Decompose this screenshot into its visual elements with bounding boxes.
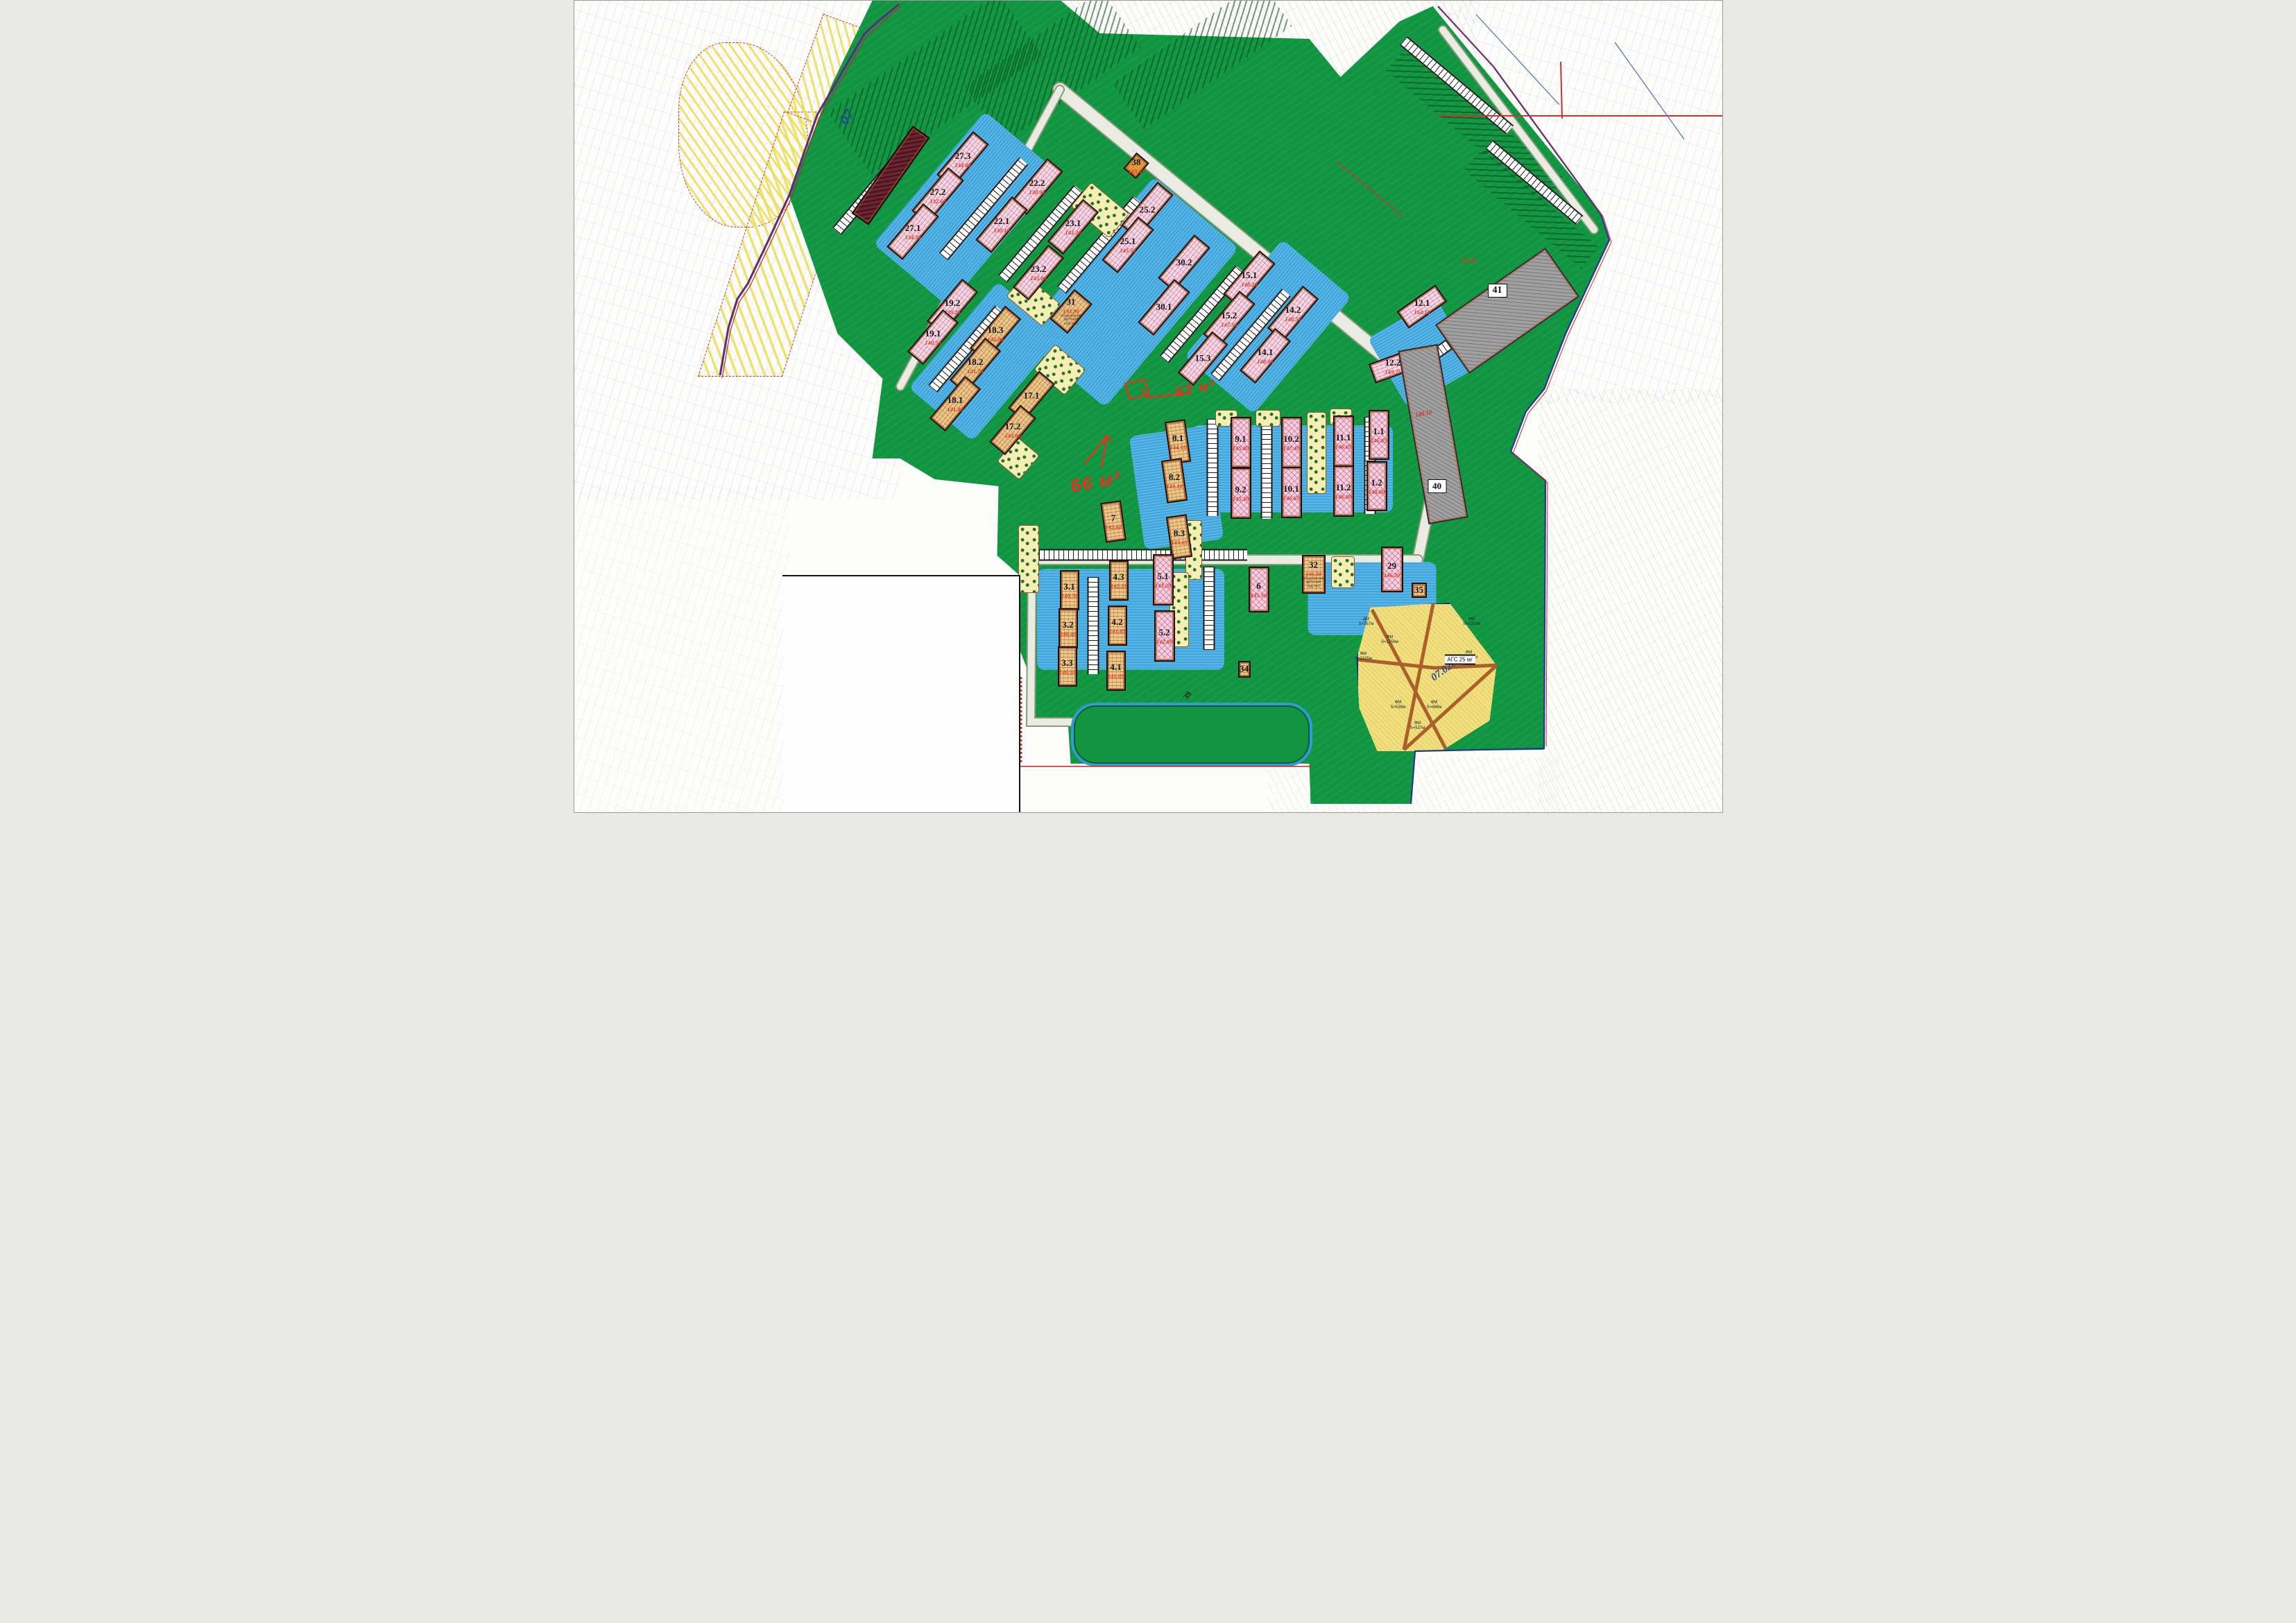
elevation-mark: 148.20 <box>1241 282 1257 288</box>
block-number: 4.2 <box>1111 617 1122 627</box>
building-label: 9.2145.30 <box>1233 484 1249 502</box>
block-number: 1.2 <box>1371 477 1382 488</box>
block-number: 17.2 <box>1004 421 1020 431</box>
parking-strip <box>1206 419 1218 516</box>
parcel-area: S=1202м <box>1463 622 1480 627</box>
elevation-mark: 142.25 <box>1111 583 1126 590</box>
elevation-mark: 147.40 <box>1283 445 1299 452</box>
block-number: 15.3 <box>1194 353 1210 363</box>
building-label: 1.2148.00 <box>1369 477 1385 495</box>
elevation-mark: 146.85 <box>1371 438 1387 444</box>
parcel-code: ФМ <box>1391 701 1406 705</box>
building-block: 10.1146.65 <box>1281 467 1302 518</box>
elevation-mark: 141.05 <box>1108 673 1124 680</box>
block-number: 30.1 <box>1156 302 1172 312</box>
block-number: 22.2 <box>1029 178 1045 188</box>
building-label: 19.1140.50 <box>925 328 941 346</box>
cadastral-texture <box>574 486 789 812</box>
block-number: 25.1 <box>1120 236 1136 246</box>
parking-strip <box>1087 577 1099 674</box>
map-label-15200: 152.00 <box>1459 257 1477 264</box>
building-label: 27.2132.60 <box>929 187 945 205</box>
building-label: 27.1134.35 <box>905 223 920 241</box>
playground-area <box>1307 412 1326 494</box>
building-label: 15.2147.50 <box>1221 310 1237 328</box>
building-label: 10.1146.65 <box>1283 483 1299 501</box>
building-label: 14.1148.05 <box>1257 347 1273 365</box>
cadastral-texture <box>1539 389 1722 812</box>
building-label: 7142.60 <box>1105 513 1121 531</box>
building-label: 9.1145.80 <box>1233 433 1249 452</box>
building-label: 8.1144.55 <box>1170 433 1185 451</box>
building-label: 12.2149.75 <box>1385 357 1400 375</box>
parcel-code: ФМ <box>1410 721 1425 726</box>
elevation-mark: 145.50 <box>1251 592 1267 599</box>
building-block: 5.2142.80 <box>1154 610 1175 662</box>
building-block: 10.2147.40 <box>1281 417 1302 468</box>
block-number: 4.3 <box>1113 572 1124 582</box>
elevation-mark: 142.60 <box>1105 524 1121 531</box>
block-number: 25.2 <box>1139 205 1155 215</box>
elevation-mark: 141.10 <box>1166 483 1182 490</box>
elevation-mark: 140.70 <box>1061 593 1077 599</box>
parcel-area: S=486м <box>1427 705 1442 710</box>
building-label: 3.3140.10 <box>1059 658 1075 676</box>
block-number: 27.3 <box>954 151 970 161</box>
block-caption: вбудований дитячий сад №3 <box>1061 314 1081 326</box>
building-label: 15.1148.20 <box>1241 270 1257 288</box>
block-number: 17.1 <box>1023 390 1039 401</box>
building-block: 11.1146.65 <box>1333 415 1354 467</box>
block-number: 12.2 <box>1385 357 1400 368</box>
parcel-area: S=1756м <box>1381 640 1398 645</box>
parcel-code: ДМ <box>1359 617 1374 622</box>
elevation-mark: 130.95 <box>1029 189 1045 196</box>
elevation-mark: 146.65 <box>1283 495 1299 501</box>
elevation-mark: 143.20 <box>1065 230 1081 236</box>
elevation-mark: 143.20 <box>1155 583 1171 589</box>
building-label: 1.1146.85 <box>1371 426 1387 444</box>
building-block: 34 <box>1238 661 1251 678</box>
block-number: 18.3 <box>987 325 1003 335</box>
block-number: 19.2 <box>944 298 960 308</box>
building-label: 17.2143.00 <box>1004 421 1020 439</box>
building-label: 17.1 <box>1023 390 1039 402</box>
elevation-mark: 130.10 <box>993 227 1009 234</box>
building-label: 30.2 <box>1176 257 1192 269</box>
stadium-field <box>1071 703 1312 766</box>
elevation-mark: 148.05 <box>1257 359 1273 365</box>
building-block: 4.1141.05 <box>1106 651 1126 691</box>
building-label: 8.2141.10 <box>1166 472 1182 490</box>
elevation-mark: 149.75 <box>1385 369 1400 375</box>
building-label: 32146.50вбудований дитячий сад №1 <box>1303 559 1324 589</box>
elevation-mark: 134.85 <box>954 162 970 169</box>
building-label: 30.1 <box>1156 302 1172 314</box>
block-number: 14.2 <box>1285 304 1301 315</box>
block-number: 10.1 <box>1283 483 1299 494</box>
building-label: 3.2140.40 <box>1060 619 1076 637</box>
block-number: 9.1 <box>1235 433 1246 444</box>
block-number: 23.1 <box>1065 218 1081 228</box>
block-number: 11.1 <box>1335 432 1351 443</box>
building-label: 18.3142.00 <box>987 325 1003 343</box>
block-number: 4.1 <box>1110 662 1121 672</box>
building-block: 5.1143.20 <box>1153 554 1174 606</box>
block-number: 34 <box>1240 664 1249 674</box>
elevation-mark: 141.70 <box>967 368 983 375</box>
parcel-area: S=1325м <box>1355 657 1372 662</box>
building-label: 18.2141.70 <box>967 357 983 375</box>
elevation-mark: 134.35 <box>905 234 920 241</box>
building-block: 9.1145.80 <box>1231 417 1251 468</box>
building-label: 6145.50 <box>1251 581 1267 599</box>
elevation-mark: 132.60 <box>929 198 945 205</box>
building-label: 23.1143.20 <box>1065 218 1081 236</box>
map-label-41: 41 <box>1488 284 1507 298</box>
building-label: 31143.90вбудований дитячий сад №3 <box>1061 296 1081 326</box>
building-block: 3.3140.10 <box>1058 646 1077 687</box>
building-label: 10.2147.40 <box>1283 433 1299 452</box>
block-number: 5.1 <box>1157 571 1168 581</box>
block-number: 15.2 <box>1221 310 1237 320</box>
building-label: 5.1143.20 <box>1155 571 1171 589</box>
building-label: 25.2 <box>1139 205 1155 216</box>
elevation-mark: 143.45 <box>1128 169 1144 175</box>
elevation-mark: 154.10 <box>1414 309 1430 316</box>
elevation-mark: 144.55 <box>1170 445 1185 451</box>
building-label: 5.2142.80 <box>1156 627 1172 645</box>
parcel-label: ФМS=537м <box>1410 721 1425 731</box>
elevation-mark: 145.80 <box>1233 445 1249 452</box>
elevation-mark: 140.50 <box>925 340 941 346</box>
block-number: 32 <box>1309 559 1318 569</box>
blank-sheet-area <box>784 576 1019 812</box>
building-label: 38143.45 <box>1128 157 1144 175</box>
building-label: 29146.20 <box>1384 560 1400 578</box>
parcel-label: ФМS=1325м <box>1355 652 1372 662</box>
parking-strip <box>1203 567 1215 650</box>
building-label: 34 <box>1240 664 1249 676</box>
building-label: 4.1141.05 <box>1108 662 1124 680</box>
map-label-40: 40 <box>1428 479 1446 493</box>
building-label: 4.2141.85 <box>1109 617 1125 635</box>
block-number: 23.2 <box>1030 264 1046 274</box>
elevation-mark: 148.55 <box>1285 316 1301 323</box>
building-block: 6145.50 <box>1249 567 1269 612</box>
block-number: 10.2 <box>1283 433 1299 444</box>
building-label: 35 <box>1414 585 1423 596</box>
elevation-mark: 143.65 <box>1171 540 1187 546</box>
elevation-mark: 140.40 <box>1060 631 1076 637</box>
building-block: 3.1140.70 <box>1060 570 1079 610</box>
building-label: 8.3143.65 <box>1171 528 1187 546</box>
building-block: 11.2146.00 <box>1333 465 1354 517</box>
building-label: 22.2130.95 <box>1029 178 1045 196</box>
frame-line <box>1019 575 1020 812</box>
building-label: 15.3 <box>1194 353 1210 365</box>
parcel-code: ФМ <box>1381 635 1398 640</box>
elevation-mark: 142.80 <box>1156 639 1172 645</box>
building-label: 22.1130.10 <box>993 216 1009 234</box>
building-label: 18.1141.40 <box>947 395 963 413</box>
building-label: 12.1154.10 <box>1414 298 1430 316</box>
block-number: 3.3 <box>1061 658 1072 668</box>
building-block: 29146.20 <box>1381 547 1403 592</box>
block-number: 18.2 <box>967 357 983 367</box>
block-number: 14.1 <box>1257 347 1273 357</box>
building-label: 4.3142.25 <box>1111 572 1126 590</box>
elevation-mark: 143.00 <box>1030 275 1046 282</box>
block-number: 18.1 <box>947 395 963 405</box>
building-label: 27.3134.85 <box>954 151 970 169</box>
building-block: 35 <box>1412 583 1427 598</box>
elevation-mark: 140.10 <box>1059 669 1075 676</box>
block-number: 6 <box>1256 581 1261 591</box>
building-label: 14.2148.55 <box>1285 304 1301 323</box>
block-number: 27.1 <box>905 223 920 233</box>
building-label: 11.2146.00 <box>1335 482 1351 500</box>
building-block: 4.3142.25 <box>1109 560 1129 601</box>
parcel-code: ФМ <box>1463 617 1480 622</box>
block-number: 3.2 <box>1062 619 1073 630</box>
parking-strip <box>1260 415 1272 519</box>
elevation-mark: 147.50 <box>1221 322 1237 328</box>
block-number: 9.2 <box>1235 484 1246 495</box>
elevation-mark: 141.85 <box>1109 628 1125 635</box>
block-number: 8.1 <box>1172 433 1183 443</box>
elevation-mark: 146.20 <box>1384 572 1400 578</box>
parcel-code: ФМ <box>1355 652 1372 657</box>
block-number: 1.1 <box>1373 426 1384 436</box>
elevation-mark: 143.00 <box>1004 433 1020 439</box>
block-number: 29 <box>1387 560 1396 571</box>
elevation-mark: 141.40 <box>947 406 963 413</box>
parcel-label: ФМS=1202м <box>1463 617 1480 627</box>
elevation-mark: 145.30 <box>1233 496 1249 502</box>
parcel-label: ФМS=486м <box>1427 701 1442 710</box>
playground-area <box>1018 525 1039 593</box>
elevation-mark: 145.55 <box>1120 248 1136 254</box>
building-label: 25.1145.55 <box>1120 236 1136 254</box>
parcel-code: ФМ <box>1427 701 1442 705</box>
block-number: 8.3 <box>1173 528 1184 538</box>
elevation-mark: 148.00 <box>1369 489 1385 495</box>
building-label: 11.1146.65 <box>1335 432 1351 450</box>
playground-area <box>1256 410 1280 427</box>
map-label-АГС25м: АГС 25 м/ <box>1444 655 1475 665</box>
block-number: 22.1 <box>993 216 1009 226</box>
block-number: 5.2 <box>1158 627 1170 637</box>
parcel-area: S=357м <box>1359 622 1374 627</box>
parcel-label: ФМS=539м <box>1391 701 1406 710</box>
building-label: 23.2143.00 <box>1030 264 1046 282</box>
playground-area <box>1331 556 1355 588</box>
building-block: 32146.50вбудований дитячий сад №1 <box>1302 555 1326 594</box>
building-block: 3.2140.40 <box>1059 608 1078 649</box>
building-block: 9.2145.30 <box>1231 467 1251 519</box>
block-number: 35 <box>1414 585 1423 595</box>
block-number: 12.1 <box>1414 298 1430 308</box>
block-number: 3.1 <box>1063 581 1074 592</box>
elevation-mark: 146.65 <box>1335 444 1351 450</box>
block-number: 11.2 <box>1335 482 1351 492</box>
site-plan-map: ДМS=357мФМS=1756мФМS=1202мФМS=1946мФМS=1… <box>574 0 1723 813</box>
parking-strip <box>1039 549 1247 561</box>
block-caption: вбудований дитячий сад №1 <box>1303 577 1324 589</box>
block-number: 7 <box>1111 513 1115 523</box>
block-number: 8.2 <box>1168 472 1179 482</box>
parcel-label: ДМS=357м <box>1359 617 1374 627</box>
block-number: 38 <box>1131 157 1140 167</box>
building-block: 1.2148.00 <box>1367 461 1387 511</box>
building-label: 3.1140.70 <box>1061 581 1077 599</box>
building-block: 1.1146.85 <box>1369 410 1389 460</box>
block-number: 19.1 <box>925 328 941 338</box>
block-number: 31 <box>1066 296 1075 307</box>
block-number: 15.1 <box>1241 270 1257 280</box>
block-number: 27.2 <box>929 187 945 197</box>
parcel-area: S=537м <box>1410 726 1425 731</box>
elevation-mark: 146.00 <box>1335 494 1351 500</box>
block-number: 30.2 <box>1176 257 1192 268</box>
building-block: 4.2141.85 <box>1108 606 1127 646</box>
parcel-label: ФМS=1756м <box>1381 635 1398 645</box>
parcel-area: S=539м <box>1391 705 1406 710</box>
